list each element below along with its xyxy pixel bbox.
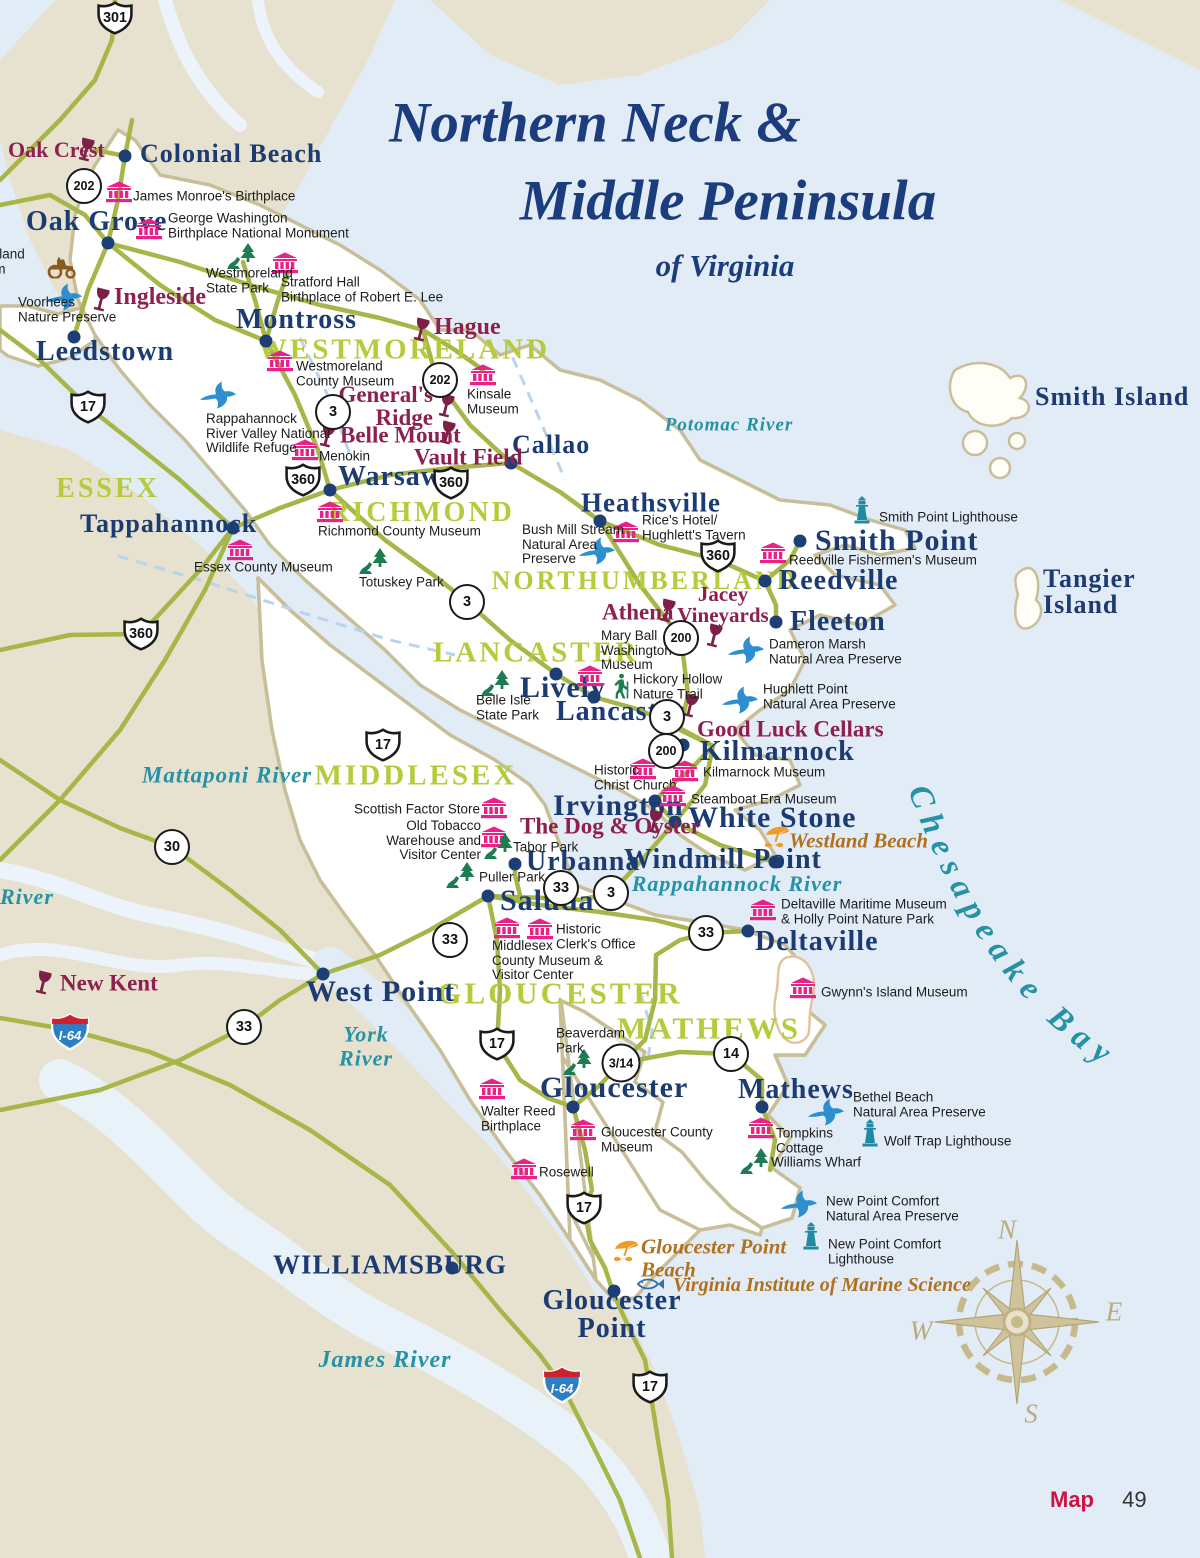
compass-w: W [910,1316,933,1347]
town-label: West Point [306,977,455,1007]
museum-icon [106,182,132,203]
route-marker-us-301: 301 [97,2,133,35]
bird-icon [722,687,758,714]
museum-label: Gwynn's Island Museum [821,986,968,1001]
winery-label: Ingleside [114,285,206,309]
museum-label: Reedville Fishermen's Museum [789,554,977,569]
museum-icon [748,1118,774,1139]
water-label: River [0,885,54,909]
route-marker-interstate-64: I-64 [50,1014,90,1051]
town-label: Reedville [779,567,898,595]
water-label: Mattaponi River [142,764,312,789]
park-icon [446,862,476,888]
route-marker-state-33: 33 [688,915,724,951]
winery-label: Oak Crest [8,139,105,161]
route-marker-us-360: 360 [123,618,159,651]
lighthouse-label: Wolf Trap Lighthouse [884,1135,1011,1150]
svg-text:I-64: I-64 [59,1028,82,1043]
town-label: Colonial Beach [140,141,322,167]
town-label: Smith Island [1035,384,1189,410]
museum-label: Rice's Hotel/ Hughlett's Tavern [642,513,746,542]
wine-icon [439,421,456,448]
route-marker-state-3: 3 [649,699,685,735]
route-marker-us-17: 17 [70,391,106,424]
compass-s: S [1024,1399,1038,1430]
svg-text:17: 17 [642,1379,658,1395]
map-subtitle: of Virginia [656,248,795,284]
svg-text:17: 17 [489,1036,505,1052]
museum-label: George Washington Birthplace National Mo… [168,211,349,240]
town-dot [742,925,755,938]
museum-label: Old Tobacco Warehouse and Visitor Center [386,819,481,863]
route-marker-state-33: 33 [226,1009,262,1045]
museum-label: Richmond County Museum [318,525,481,540]
route-marker-state-33: 33 [432,922,468,958]
town-label: Leedstown [36,338,174,366]
umbrella-icon [764,826,790,848]
preserve-label: New Point Comfort Natural Area Preserve [826,1194,959,1223]
town-label: Montross [236,306,357,334]
museum-label: Kinsale Museum [467,387,519,416]
farm-label: Westmoreland Berry Farm [0,247,25,276]
museum-label: Deltaville Maritime Museum & Holly Point… [781,897,947,926]
museum-icon [479,1079,505,1100]
vims-label: Virginia Institute of Marine Science [673,1275,971,1297]
museum-label: Rosewell [539,1166,594,1181]
county-label: MATHEWS [617,1013,801,1044]
beach-label: Westland Beach [789,830,928,853]
museum-icon [527,919,553,940]
museum-label: Essex County Museum [194,561,333,576]
water-label: Rappahannock River [632,872,843,896]
bird-icon [781,1191,817,1218]
town-dot [102,237,115,250]
route-marker-state-33: 33 [543,870,579,906]
museum-icon [577,666,603,687]
route-marker-state-200: 200 [663,620,699,656]
preserve-label: Rappahannock River Valley National Wildl… [206,412,330,456]
park-icon [359,548,389,574]
bird-icon [728,637,764,664]
winery-label: Good Luck Cellars [697,718,884,741]
museum-icon [750,900,776,921]
route-marker-us-17: 17 [365,729,401,762]
marker-layer: ESSEXWESTMORELANDRICHMONDNORTHUMBERLANDL… [0,0,1200,1558]
compass-e: E [1106,1297,1123,1328]
museum-label: Westmoreland County Museum [296,359,394,388]
winery-label: Vault Field [414,446,522,469]
county-label: MIDDLESEX [315,762,518,791]
museum-icon [317,502,343,523]
museum-label: Walter Reed Birthplace [481,1104,556,1133]
route-marker-state-14: 14 [713,1036,749,1072]
water-label: James River [319,1348,452,1374]
svg-text:17: 17 [576,1200,592,1216]
preserve-label: Dameron Marsh Natural Area Preserve [769,637,902,666]
park-icon [484,833,514,859]
town-label: Tappahannock [80,511,257,537]
winery-label: The Dog & Oyster [520,815,701,838]
museum-label: Scottish Factor Store [354,803,480,818]
route-marker-state-3: 3 [593,875,629,911]
park-label: Belle Isle State Park [476,693,539,722]
page-footer: Map 49 [1050,1487,1147,1513]
preserve-label: Hughlett Point Natural Area Preserve [763,682,896,711]
hiker-icon [613,674,630,699]
route-marker-us-360: 360 [433,467,469,500]
museum-label: James Monroe's Birthplace [133,190,295,205]
route-marker-us-360: 360 [285,464,321,497]
route-marker-us-17: 17 [566,1192,602,1225]
town-dot [324,484,337,497]
map-title-line1: Northern Neck & [389,91,801,156]
route-marker-state-202: 202 [422,362,458,398]
museum-label: Kilmarnock Museum [703,766,825,781]
town-dot [770,616,783,629]
route-marker-us-360: 360 [700,540,736,573]
route-marker-interstate-64: I-64 [542,1367,582,1404]
park-label: Puller Park [479,871,545,886]
museum-icon [227,540,253,561]
museum-icon [494,918,520,939]
town-label: Tangier Island [1043,566,1200,618]
town-label: WILLIAMSBURG [273,1252,507,1279]
svg-text:360: 360 [291,472,315,488]
map-title-line2: Middle Peninsula [520,169,936,234]
winery-label: New Kent [60,972,158,995]
route-marker-us-17: 17 [632,1371,668,1404]
preserve-label: Voorhees Nature Preserve [18,295,116,324]
preserve-label: Bethel Beach Natural Area Preserve [853,1090,986,1119]
museum-icon [136,219,162,240]
museum-label: Gloucester County Museum [601,1125,713,1154]
museum-label: Stratford Hall Birthplace of Robert E. L… [281,275,443,304]
wine-icon [706,624,723,651]
svg-text:301: 301 [103,10,127,26]
winery-label: Athena [602,601,674,624]
svg-text:360: 360 [706,548,730,564]
museum-icon [470,365,496,386]
svg-text:17: 17 [375,737,391,753]
page-number: 49 [1122,1487,1146,1512]
tractor-icon [47,258,77,279]
museum-icon [790,978,816,999]
town-label: Fleeton [790,608,886,636]
water-label: York River [339,1022,393,1070]
route-marker-state-3: 3 [315,394,351,430]
museum-icon [481,798,507,819]
museum-icon [267,351,293,372]
town-dot [794,535,807,548]
svg-text:I-64: I-64 [551,1381,574,1396]
bird-icon [200,382,236,409]
town-dot [119,150,132,163]
wine-icon [413,318,430,345]
map-canvas: Chesapeake Bay ESSEXWESTMORELANDRICHMOND… [0,0,1200,1558]
wine-icon [35,971,52,998]
route-marker-state-200: 200 [648,733,684,769]
museum-icon [511,1159,537,1180]
museum-label: Tompkins Cottage [776,1126,833,1155]
park-label: Westmoreland State Park [206,266,293,295]
town-label: Kilmarnock [700,738,855,766]
route-marker-us-17: 17 [479,1028,515,1061]
map-word: Map [1050,1487,1094,1512]
preserve-label: Bush Mill Stream Natural Area Preserve [522,523,624,567]
town-label: Callao [512,432,590,458]
lighthouse-label: New Point Comfort Lighthouse [828,1237,941,1266]
park-icon [740,1148,770,1174]
trail-label: Hickory Hollow Nature Trail [633,672,722,701]
route-marker-state-30: 30 [154,829,190,865]
fish-icon [635,1277,665,1292]
svg-text:17: 17 [80,399,96,415]
svg-text:360: 360 [439,475,463,491]
lighthouse-icon [860,1119,880,1149]
lighthouse-label: Smith Point Lighthouse [879,511,1018,526]
winery-label: Hague [434,315,501,339]
town-label: Gloucester Point [542,1287,681,1343]
county-label: ESSEX [56,475,160,503]
museum-label: Steamboat Era Museum [691,793,837,808]
park-label: Williams Wharf [771,1156,861,1171]
park-label: Tabor Park [513,841,578,856]
bird-icon [808,1099,844,1126]
route-marker-state-202: 202 [66,168,102,204]
park-label: Totuskey Park [359,576,444,591]
museum-icon [760,543,786,564]
town-dot [482,890,495,903]
umbrella-icon [613,1240,639,1262]
museum-label: Historic Clerk's Office [556,922,636,951]
svg-text:360: 360 [129,626,153,642]
lighthouse-icon [852,496,872,526]
museum-icon [660,786,686,807]
museum-label: Mary Ball Washington Museum [601,629,672,673]
route-marker-state-3-14: 3/14 [602,1044,641,1083]
lighthouse-icon [801,1222,821,1252]
town-label: Deltaville [755,928,879,956]
water-label: Potomac River [665,416,794,437]
winery-label: Jacey Vineyards [677,584,768,626]
compass-n: N [998,1215,1016,1246]
town-dot [509,858,522,871]
town-dot [260,335,273,348]
museum-icon [570,1120,596,1141]
route-marker-state-3: 3 [449,584,485,620]
town-label: Smith Point [815,526,979,556]
